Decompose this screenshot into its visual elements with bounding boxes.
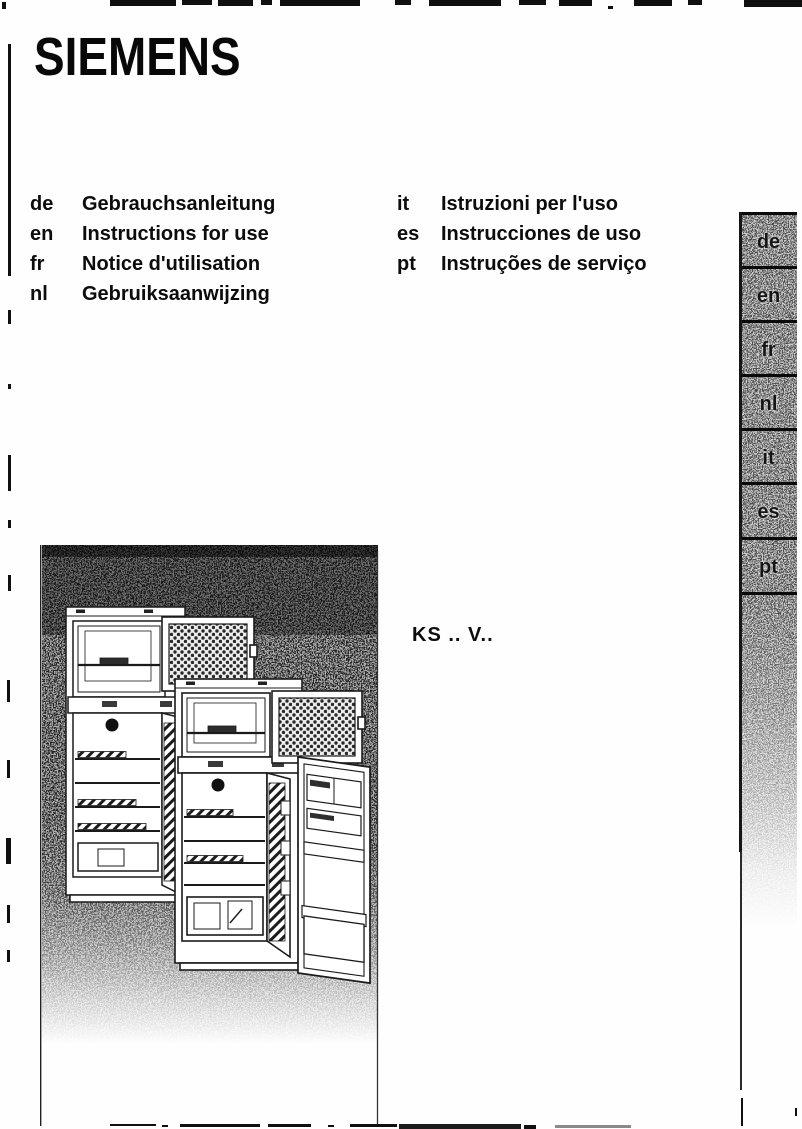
scan-artifact xyxy=(8,455,11,491)
model-code: KS .. V.. xyxy=(412,624,494,647)
scan-artifact xyxy=(7,905,10,923)
scan-artifact xyxy=(110,1124,156,1126)
language-label: Gebrauchsanleitung xyxy=(82,191,275,217)
sidebar-border-line xyxy=(740,852,742,1090)
language-code: en xyxy=(30,221,82,247)
language-row-de: de Gebrauchsanleitung xyxy=(30,191,275,221)
language-label: Instructions for use xyxy=(82,221,269,247)
sidebar-tab-nl: nl xyxy=(740,374,797,428)
refrigerator-illustration xyxy=(40,545,390,1126)
scan-artifact xyxy=(634,0,672,6)
language-code: de xyxy=(30,191,82,217)
scan-artifact xyxy=(399,1124,521,1129)
language-code: pt xyxy=(397,251,441,277)
sidebar-tab-fr: fr xyxy=(740,320,797,374)
scan-artifact xyxy=(8,310,11,324)
scan-artifact xyxy=(8,384,11,389)
language-code: it xyxy=(397,191,441,217)
scan-artifact xyxy=(741,1098,743,1126)
language-label: Istruzioni per l'uso xyxy=(441,191,618,217)
scan-artifact xyxy=(350,1124,397,1127)
scan-artifact xyxy=(7,950,10,962)
language-row-en: en Instructions for use xyxy=(30,221,275,251)
scan-artifact xyxy=(7,760,10,778)
language-row-it: it Istruzioni per l'uso xyxy=(397,191,647,221)
sidebar-tab-de: de xyxy=(740,212,797,266)
language-row-nl: nl Gebruiksaanwijzing xyxy=(30,281,275,311)
scan-artifact xyxy=(280,0,360,6)
scan-artifact xyxy=(795,1108,797,1116)
scan-artifact xyxy=(180,1124,260,1127)
language-code: es xyxy=(397,221,441,247)
sidebar-border-line xyxy=(739,212,742,852)
right-main-door xyxy=(298,757,370,983)
language-label: Gebruiksaanwijzing xyxy=(82,281,270,307)
scan-artifact xyxy=(8,575,11,591)
language-index-sidebar: de en fr nl it es pt xyxy=(740,212,797,1129)
language-label: Instrucciones de uso xyxy=(441,221,641,247)
scan-artifact xyxy=(555,1125,631,1128)
scan-artifact xyxy=(429,0,501,6)
scan-artifact xyxy=(744,0,802,7)
language-row-pt: pt Instruções de serviço xyxy=(397,251,647,281)
manual-cover-page: SIEMENS de Gebrauchsanleitung en Instruc… xyxy=(0,0,802,1129)
scan-artifact xyxy=(8,520,11,528)
scan-artifact xyxy=(8,44,11,276)
sidebar-tab-es: es xyxy=(740,482,797,537)
scan-artifact xyxy=(2,2,6,9)
language-list-right: it Istruzioni per l'uso es Instrucciones… xyxy=(397,191,647,281)
scan-artifact xyxy=(524,1125,536,1129)
sidebar-tab-it: it xyxy=(740,428,797,482)
scan-artifact xyxy=(268,1124,311,1127)
language-row-es: es Instrucciones de uso xyxy=(397,221,647,251)
language-label: Instruções de serviço xyxy=(441,251,647,277)
scan-artifact xyxy=(6,838,11,864)
scan-artifact xyxy=(182,0,212,5)
sidebar-tab-en: en xyxy=(740,266,797,320)
scan-artifact xyxy=(7,680,10,702)
brand-logo: SIEMENS xyxy=(34,26,241,88)
scan-artifact xyxy=(328,1125,334,1127)
sidebar-tab-pt: pt xyxy=(740,537,797,592)
scan-artifact xyxy=(162,1125,168,1127)
scan-artifact xyxy=(110,0,176,6)
language-code: fr xyxy=(30,251,82,277)
scan-artifact xyxy=(559,0,592,6)
right-freezer-door-grille xyxy=(272,691,365,763)
language-label: Notice d'utilisation xyxy=(82,251,260,277)
scan-artifact xyxy=(608,6,613,9)
language-list-left: de Gebrauchsanleitung en Instructions fo… xyxy=(30,191,275,311)
scan-artifact xyxy=(261,0,272,5)
language-row-fr: fr Notice d'utilisation xyxy=(30,251,275,281)
scan-artifact xyxy=(688,0,702,5)
scan-artifact xyxy=(218,0,253,6)
sidebar-tab-divider xyxy=(740,592,797,595)
scan-artifact xyxy=(395,0,411,5)
scan-artifact xyxy=(519,0,546,5)
language-code: nl xyxy=(30,281,82,307)
